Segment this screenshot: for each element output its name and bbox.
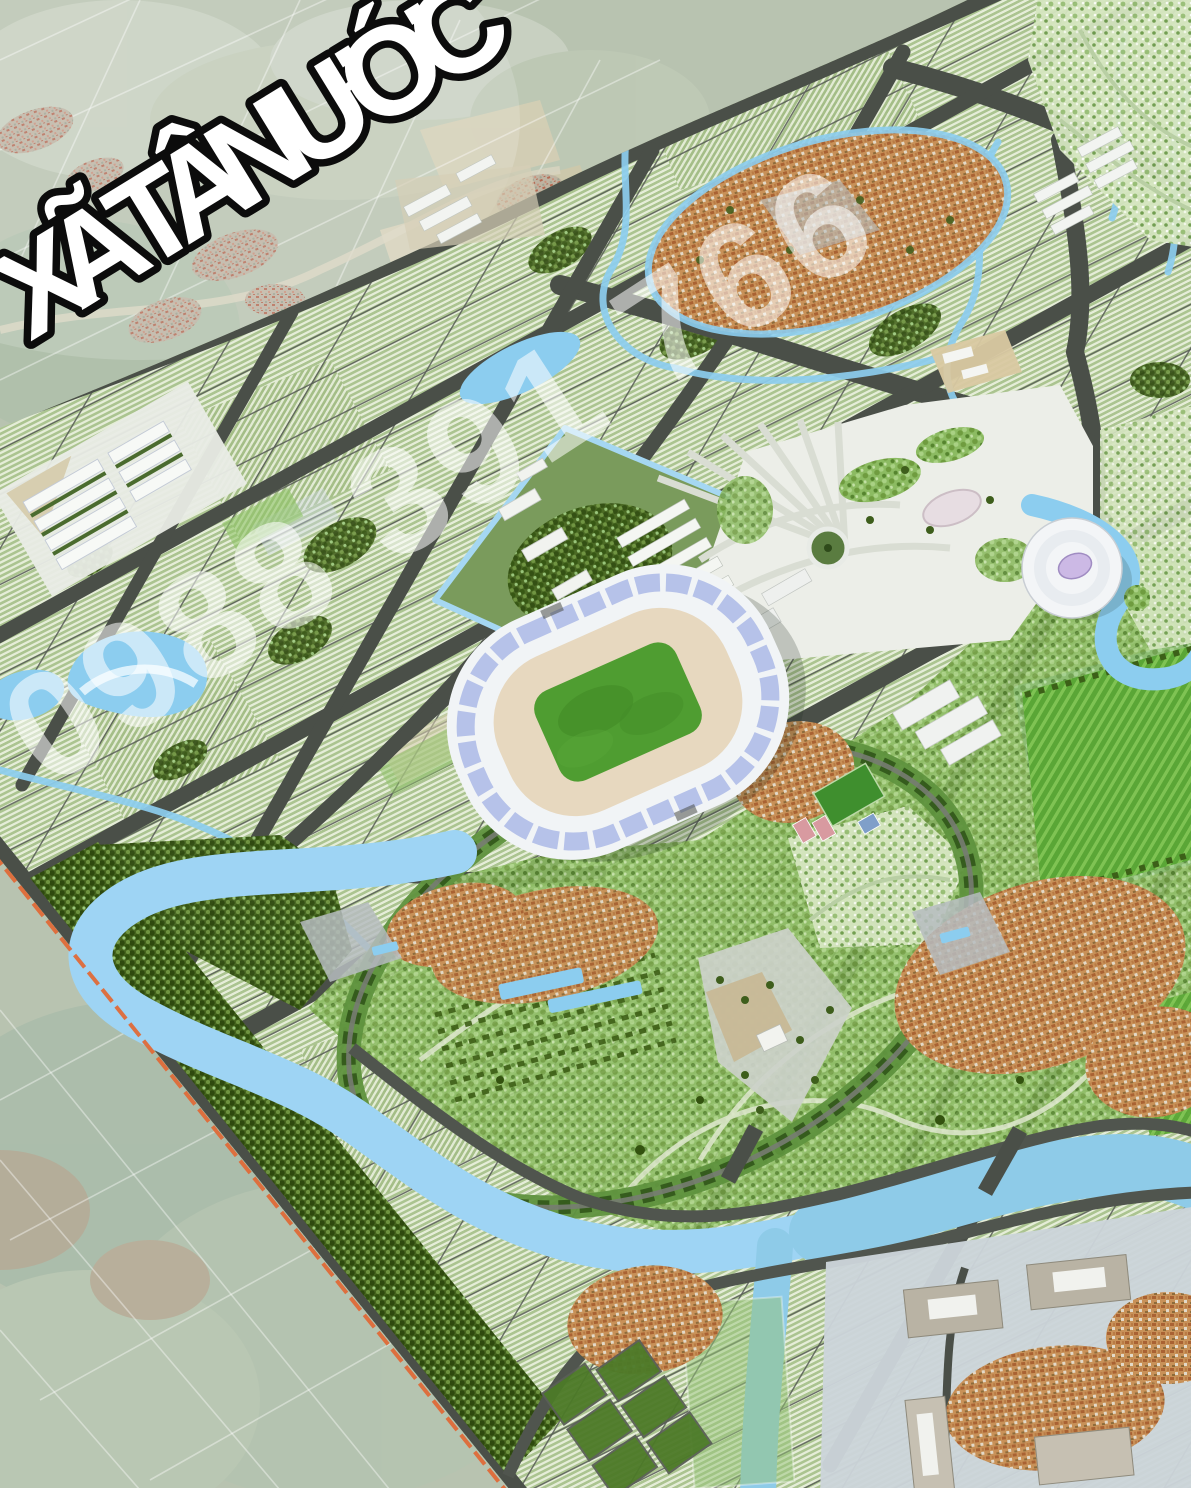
masterplan-rendering: 0988 391 766 XÃ TÂN ƯỚC bbox=[0, 0, 1191, 1488]
